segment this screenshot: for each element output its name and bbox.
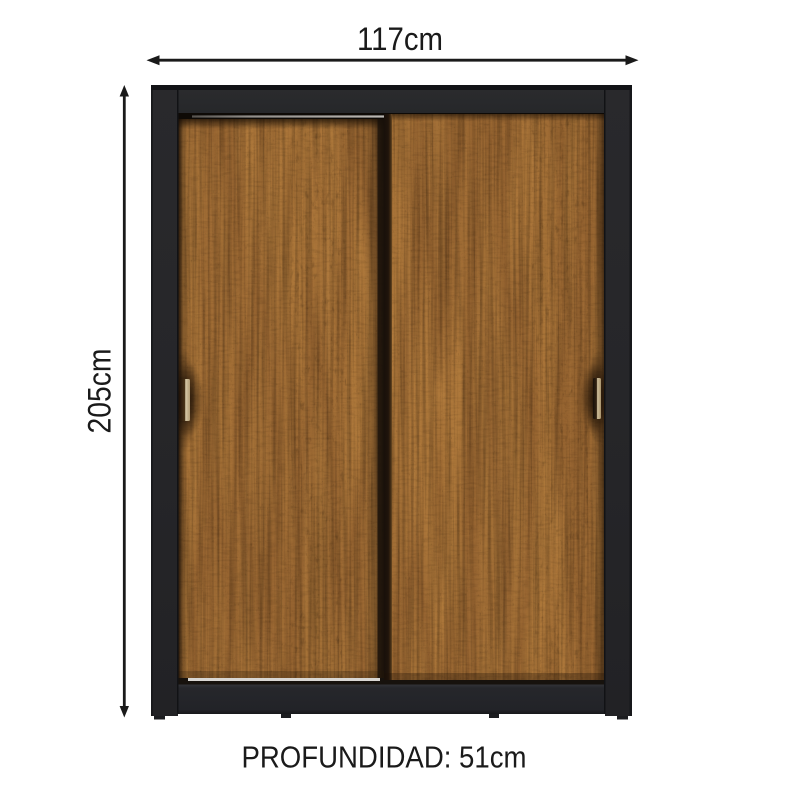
- svg-text:205cm: 205cm: [82, 349, 118, 434]
- svg-text:PROFUNDIDAD: 51cm: PROFUNDIDAD: 51cm: [242, 740, 527, 775]
- svg-text:117cm: 117cm: [357, 21, 443, 57]
